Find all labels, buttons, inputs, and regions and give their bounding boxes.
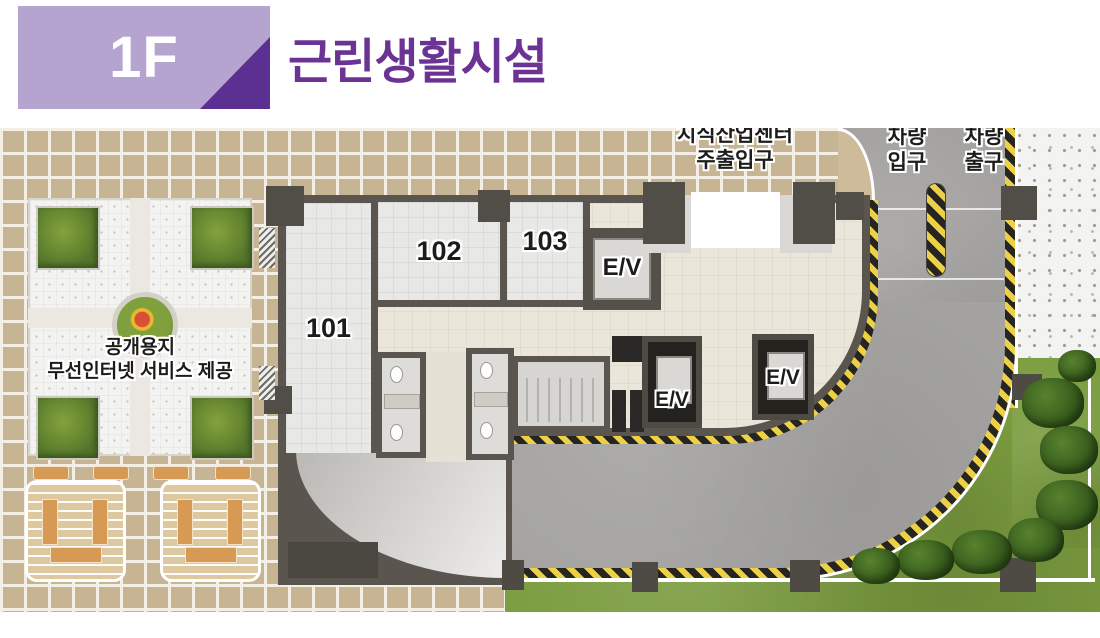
toilet-icon (480, 362, 493, 379)
elevator-3: E/V (752, 334, 814, 420)
room-103-label: 103 (522, 226, 567, 257)
restroom-left (376, 352, 426, 458)
pillar (266, 186, 304, 226)
bush (898, 540, 954, 580)
toilet-icon (390, 366, 403, 383)
restroom-corridor (426, 352, 466, 462)
room-101: 101 (286, 203, 378, 453)
page-title: 근린생활시설 (288, 22, 547, 92)
planter (190, 396, 254, 460)
elevator-1-label: E/V (583, 254, 661, 282)
toilet-icon (390, 424, 403, 441)
planter (36, 396, 100, 460)
stair-treads (526, 378, 596, 422)
fence-post (502, 560, 524, 590)
ramp-landing (288, 542, 378, 578)
bush (1040, 426, 1098, 474)
bench-table (153, 466, 189, 480)
pergola (25, 480, 126, 582)
pergola-bench (92, 499, 108, 545)
public-area-label: 공개용지 무선인터넷 서비스 제공 (0, 336, 280, 384)
bush (852, 548, 900, 584)
vehicle-entrance-label-line1: 차량 (872, 128, 942, 150)
floor-plan: 101 102 103 E/V E/ (0, 128, 1100, 612)
bench-table (215, 466, 251, 480)
pergola-bench (185, 547, 237, 563)
sink-icon (474, 392, 508, 407)
main-entrance-label: 지식산업센터 주출입구 (640, 128, 830, 174)
right-sidewalk-tile (1012, 128, 1100, 376)
main-entrance-label-line1: 지식산업센터 (640, 128, 830, 148)
utility-shaft (612, 390, 626, 432)
pillar (1001, 186, 1037, 220)
sink-icon (384, 394, 420, 409)
vehicle-entrance-label: 차량 입구 (872, 128, 942, 176)
room-101-label: 101 (306, 313, 351, 344)
room-102-label: 102 (416, 236, 461, 267)
elevator-3-label: E/V (758, 366, 808, 390)
restroom-right (466, 348, 514, 460)
fence-post (790, 560, 820, 592)
right-curb-line (1088, 374, 1091, 580)
utility-shaft (612, 336, 644, 362)
pillar (643, 182, 685, 244)
bush (952, 530, 1012, 574)
door-swing-mark (259, 228, 275, 268)
staircase (512, 356, 610, 432)
public-area-label-line1: 공개용지 (0, 336, 280, 360)
bush (1058, 350, 1096, 382)
pergola-bench (227, 499, 243, 545)
elevator-2: E/V (642, 336, 702, 428)
pergola (160, 480, 261, 582)
main-entrance-opening (691, 192, 780, 248)
pillar (478, 190, 510, 222)
fence-post (632, 562, 658, 592)
main-entrance-label-line2: 주출입구 (640, 148, 830, 174)
pergola-bench (50, 547, 102, 563)
planter (36, 206, 100, 270)
vehicle-exit-label-line2: 출구 (948, 150, 1020, 176)
vehicle-exit-label-line1: 차량 (948, 128, 1020, 150)
hazard-bollard (927, 184, 945, 276)
vehicle-exit-label: 차량 출구 (948, 128, 1020, 176)
bush (1008, 518, 1064, 562)
bench-table (33, 466, 69, 480)
public-area-label-line2: 무선인터넷 서비스 제공 (0, 360, 280, 384)
room-103: 103 (500, 195, 590, 307)
toilet-icon (480, 422, 493, 439)
planter (190, 206, 254, 270)
pergola-bench (177, 499, 193, 545)
floor-badge: 1F (18, 6, 270, 109)
bench-table (93, 466, 129, 480)
pillar (836, 192, 864, 220)
bush (1022, 378, 1084, 428)
pillar (793, 182, 835, 244)
pergola-bench (42, 499, 58, 545)
lane-line (872, 278, 1004, 280)
vehicle-entrance-label-line2: 입구 (872, 150, 942, 176)
elevator-2-label: E/V (648, 388, 696, 412)
